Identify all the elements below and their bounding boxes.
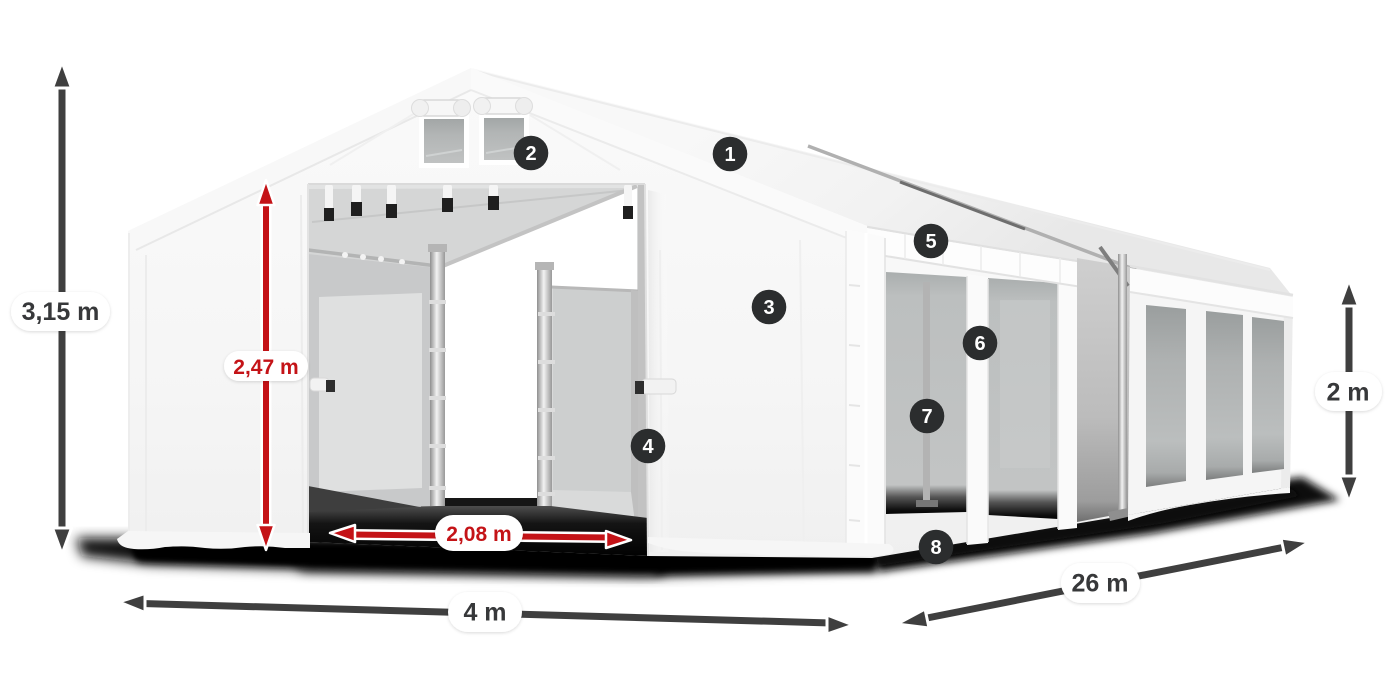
svg-text:5: 5 (925, 231, 936, 253)
svg-text:2: 2 (525, 143, 536, 165)
svg-text:4: 4 (642, 436, 654, 458)
svg-text:6: 6 (974, 333, 985, 355)
svg-text:1: 1 (724, 144, 735, 166)
svg-text:7: 7 (921, 406, 932, 428)
svg-text:2,47 m: 2,47 m (233, 356, 298, 379)
svg-text:2,08 m: 2,08 m (446, 523, 511, 546)
svg-text:3,15 m: 3,15 m (22, 298, 100, 326)
svg-text:4 m: 4 m (463, 599, 506, 627)
svg-text:3: 3 (763, 297, 774, 319)
svg-text:8: 8 (930, 537, 941, 559)
svg-text:26 m: 26 m (1072, 570, 1129, 598)
svg-text:2 m: 2 m (1326, 379, 1369, 407)
